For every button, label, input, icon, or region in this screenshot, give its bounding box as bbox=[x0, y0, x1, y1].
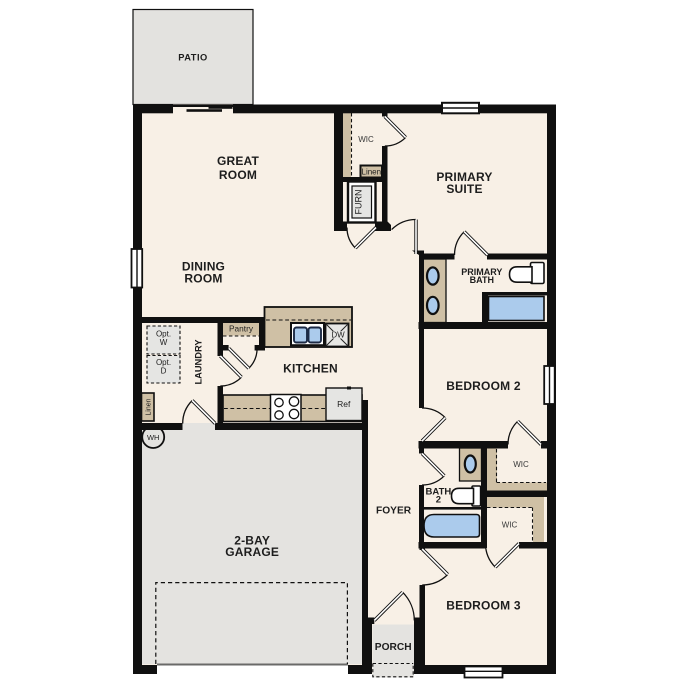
svg-text:LAUNDRY: LAUNDRY bbox=[194, 339, 204, 385]
svg-text:Ref: Ref bbox=[337, 399, 351, 409]
svg-text:DW: DW bbox=[331, 330, 345, 339]
svg-text:SUITE: SUITE bbox=[446, 182, 482, 196]
svg-text:GARAGE: GARAGE bbox=[225, 545, 279, 559]
svg-text:FOYER: FOYER bbox=[376, 506, 412, 517]
svg-text:BEDROOM 3: BEDROOM 3 bbox=[446, 598, 521, 612]
svg-text:WH: WH bbox=[147, 433, 160, 442]
svg-text:ROOM: ROOM bbox=[219, 168, 257, 182]
svg-text:Linen: Linen bbox=[362, 168, 382, 177]
svg-text:BEDROOM 2: BEDROOM 2 bbox=[446, 379, 521, 393]
svg-text:Pantry: Pantry bbox=[229, 324, 254, 334]
svg-text:ROOM: ROOM bbox=[184, 272, 222, 286]
svg-text:WIC: WIC bbox=[358, 135, 374, 144]
svg-text:WIC: WIC bbox=[513, 460, 529, 469]
svg-text:KITCHEN: KITCHEN bbox=[283, 361, 338, 375]
svg-text:D: D bbox=[161, 367, 167, 376]
svg-text:2: 2 bbox=[436, 495, 441, 506]
svg-text:WIC: WIC bbox=[502, 521, 518, 530]
svg-text:PORCH: PORCH bbox=[375, 642, 412, 653]
svg-text:FURN: FURN bbox=[354, 190, 364, 215]
svg-text:GREAT: GREAT bbox=[217, 154, 260, 168]
svg-text:BATH: BATH bbox=[470, 275, 494, 285]
svg-text:Linen: Linen bbox=[145, 398, 152, 415]
svg-text:W: W bbox=[160, 338, 168, 347]
svg-text:PATIO: PATIO bbox=[178, 52, 208, 62]
